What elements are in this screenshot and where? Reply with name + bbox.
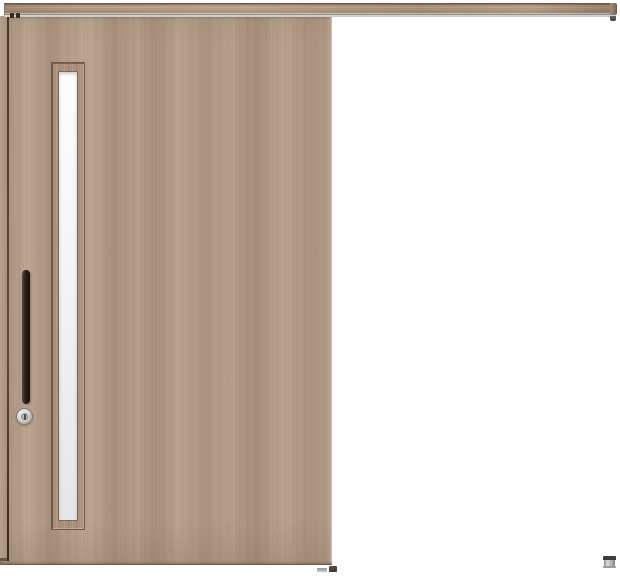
rail-track <box>4 14 616 17</box>
thumbturn-lock <box>16 408 33 425</box>
hanger-roller-front <box>10 13 14 18</box>
top-rail <box>4 3 616 14</box>
rail-end-bracket <box>610 16 616 21</box>
door-left-frame <box>0 16 7 561</box>
hanger-roller-rear <box>16 13 20 18</box>
bottom-stopper <box>329 566 337 572</box>
rail-end-cap <box>610 3 617 15</box>
door-right-edge-highlight <box>329 16 332 565</box>
frame-door-gap-line <box>7 16 9 561</box>
bottom-guide <box>317 568 327 572</box>
glass-pane <box>58 71 78 521</box>
door-bottom-edge <box>0 561 332 565</box>
handle-bar <box>22 270 30 404</box>
product-image-canvas <box>0 0 620 576</box>
door-panel <box>0 16 332 565</box>
hanger-roller <box>10 13 20 18</box>
floor-guide-base <box>603 566 616 568</box>
lock-slot <box>24 414 26 420</box>
glass-slit-frame <box>51 62 85 530</box>
floor-guide <box>603 556 616 568</box>
